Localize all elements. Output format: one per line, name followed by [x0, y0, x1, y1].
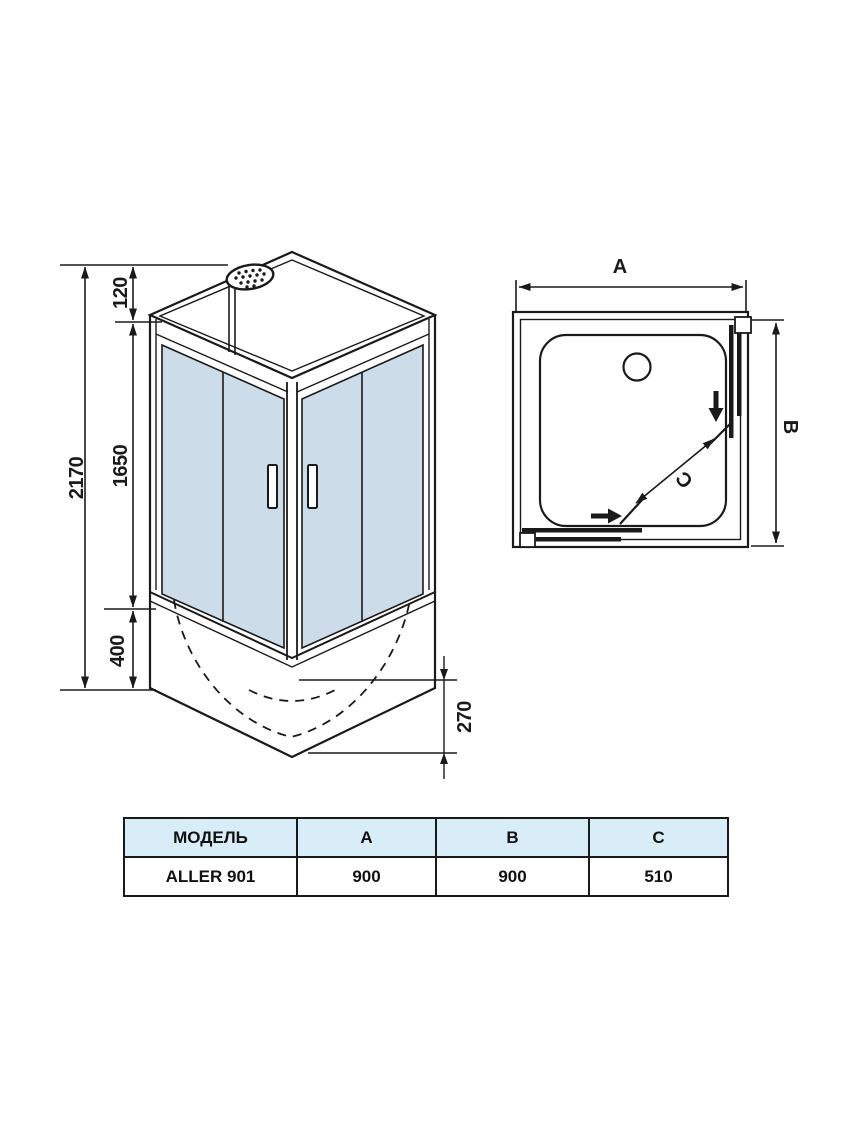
top-view: A B C: [513, 256, 801, 547]
header-a: A: [297, 818, 436, 857]
door-motion-arrows: [591, 391, 724, 524]
shower-tray: [150, 592, 435, 757]
plan-corner-profile-bottom: [520, 533, 535, 547]
dim-1650-label: 1650: [110, 444, 132, 487]
cell-c: 510: [589, 857, 728, 896]
dim-120-label: 120: [110, 277, 132, 309]
door-handles: [268, 465, 317, 508]
header-b: B: [436, 818, 589, 857]
spec-table-wrap: МОДЕЛЬ A B C ALLER 901 900 900 510: [123, 817, 727, 897]
dim-b-label: B: [779, 420, 801, 434]
drain-icon: [624, 354, 651, 381]
plan-door-panels: [522, 325, 742, 542]
handle-left: [268, 465, 277, 508]
dim-400-label: 400: [107, 635, 129, 667]
spec-table: МОДЕЛЬ A B C ALLER 901 900 900 510: [123, 817, 729, 897]
spec-table-header-row: МОДЕЛЬ A B C: [124, 818, 728, 857]
glass-panels: [162, 345, 423, 648]
door-edge-tick-bottom: [620, 500, 642, 524]
dim-c-line: [636, 439, 714, 503]
spec-table-data-row: ALLER 901 900 900 510: [124, 857, 728, 896]
plan-inner-frame: [521, 320, 741, 540]
shower-cabin-drawing: 2170 120 1650 400 270: [0, 0, 850, 800]
handle-right: [308, 465, 317, 508]
header-model: МОДЕЛЬ: [124, 818, 297, 857]
header-c: C: [589, 818, 728, 857]
plan-tray: [540, 335, 726, 526]
dim-2170-label: 2170: [66, 456, 88, 499]
cell-a: 900: [297, 857, 436, 896]
dim-a-label: A: [613, 256, 627, 278]
plan-corner-profile-top: [735, 317, 751, 333]
front-view: 2170 120 1650 400 270: [60, 252, 476, 779]
cell-model: ALLER 901: [124, 857, 297, 896]
cell-b: 900: [436, 857, 589, 896]
dim-tray-depth: [440, 656, 448, 779]
door-edge-tick-top: [710, 422, 732, 444]
dim-270-label: 270: [454, 701, 476, 733]
technical-drawing-page: 2170 120 1650 400 270: [0, 0, 850, 1134]
dim-a: [516, 280, 746, 311]
